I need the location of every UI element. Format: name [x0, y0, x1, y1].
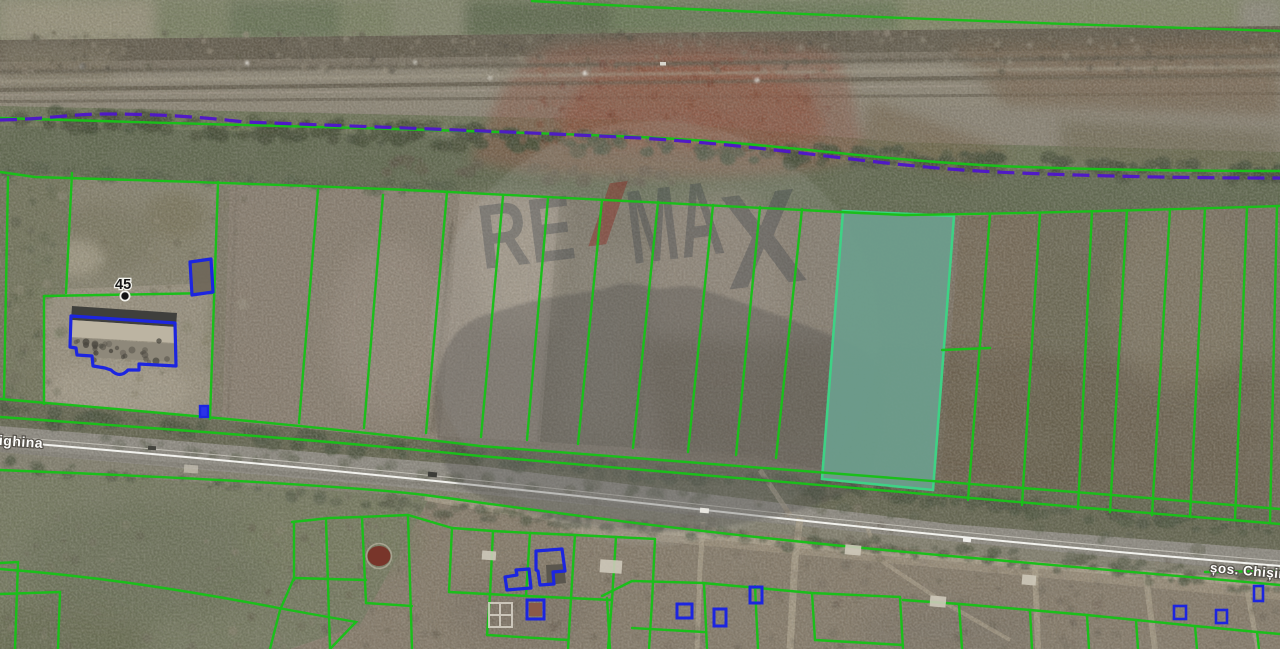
- svg-text:45: 45: [115, 277, 131, 293]
- svg-text:MA: MA: [620, 159, 728, 287]
- svg-text:Tighina: Tighina: [0, 431, 44, 451]
